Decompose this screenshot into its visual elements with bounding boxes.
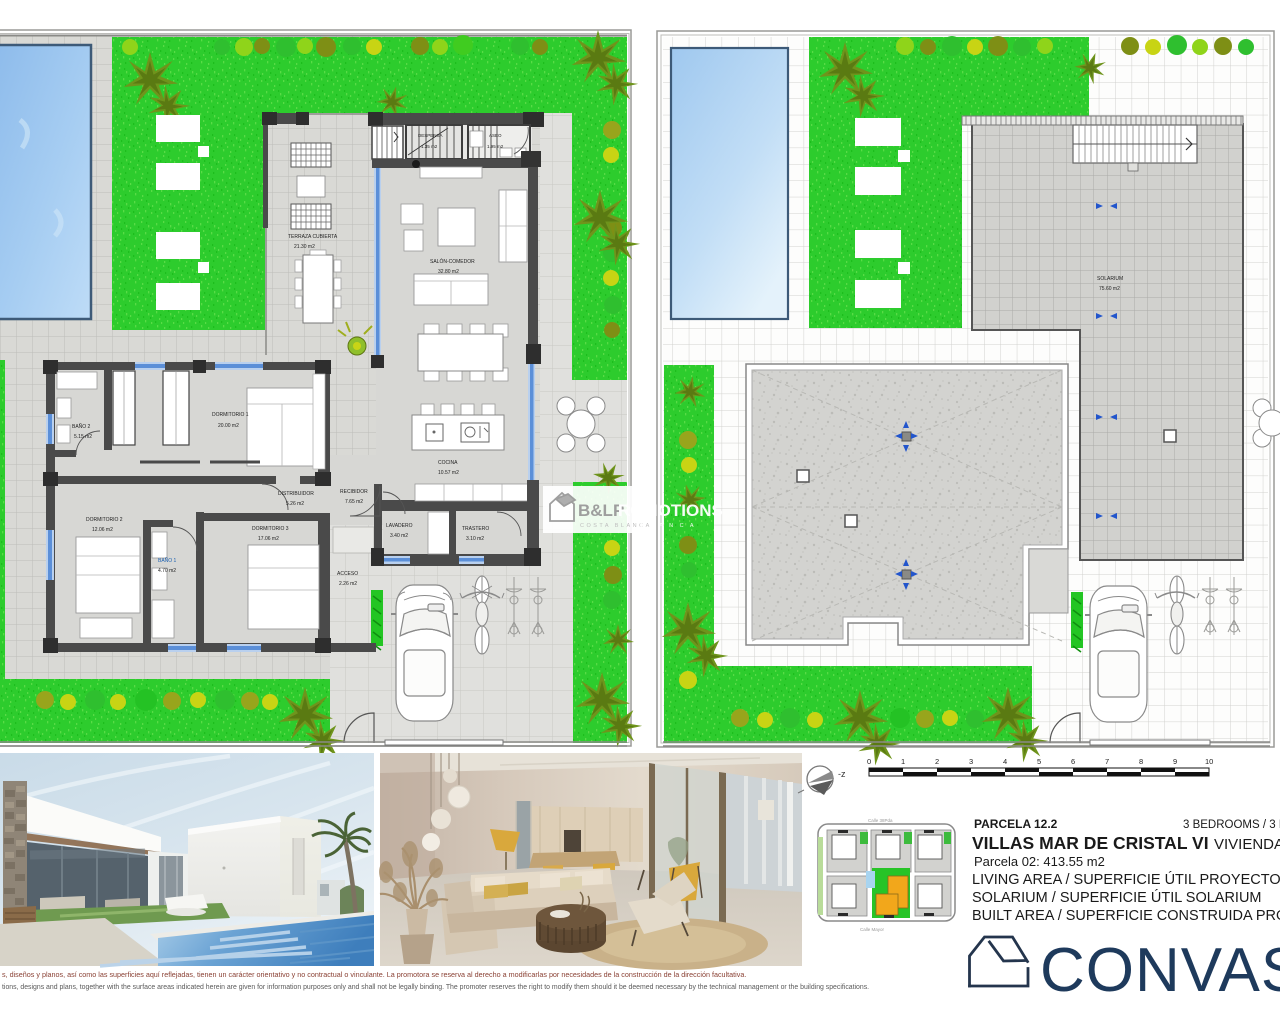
svg-text:75.60 m2: 75.60 m2 bbox=[1099, 286, 1120, 292]
svg-text:5.15 m2: 5.15 m2 bbox=[74, 434, 92, 440]
svg-text:BUILT AREA / SUPERFICIE CONSTR: BUILT AREA / SUPERFICIE CONSTRUIDA PROYE… bbox=[972, 908, 1280, 924]
svg-text:0: 0 bbox=[867, 757, 871, 766]
svg-text:4.70 m2: 4.70 m2 bbox=[158, 568, 176, 574]
svg-text:1: 1 bbox=[901, 757, 905, 766]
svg-text:6: 6 bbox=[1071, 757, 1075, 766]
svg-text:-z: -z bbox=[838, 769, 846, 779]
svg-text:tions, designs and plans, toge: tions, designs and plans, together with … bbox=[2, 984, 869, 991]
svg-text:VIVIENDA 02: VIVIENDA 02 bbox=[1214, 836, 1280, 853]
svg-text:TRASTERO: TRASTERO bbox=[462, 526, 489, 532]
svg-text:2: 2 bbox=[935, 757, 939, 766]
svg-text:3 BEDROOMS / 3 DORMITORIOS: 3 BEDROOMS / 3 DORMITORIOS bbox=[1183, 819, 1280, 831]
svg-text:8: 8 bbox=[1139, 757, 1143, 766]
svg-text:2.26 m2: 2.26 m2 bbox=[339, 581, 357, 587]
svg-text:BAÑO 1: BAÑO 1 bbox=[158, 557, 177, 564]
svg-text:CONVAS: CONVAS bbox=[1040, 936, 1280, 1005]
svg-text:DESPENSA: DESPENSA bbox=[418, 133, 443, 138]
svg-text:TERRAZA CUBIERTA: TERRAZA CUBIERTA bbox=[288, 234, 338, 240]
svg-text:LIVING AREA / SUPERFICIE ÚTIL: LIVING AREA / SUPERFICIE ÚTIL PROYECTO bbox=[972, 871, 1280, 888]
svg-text:9: 9 bbox=[1173, 757, 1177, 766]
svg-text:Calle Mayor: Calle Mayor bbox=[860, 927, 885, 932]
svg-text:12.06 m2: 12.06 m2 bbox=[92, 527, 113, 533]
svg-text:5.26 m2: 5.26 m2 bbox=[286, 501, 304, 507]
svg-text:21.30 m2: 21.30 m2 bbox=[294, 244, 315, 250]
svg-text:s, diseños y planos, así como: s, diseños y planos, así como las superf… bbox=[2, 970, 746, 979]
svg-text:7.65 m2: 7.65 m2 bbox=[345, 499, 363, 505]
svg-text:ROMOTIONS: ROMOTIONS bbox=[618, 501, 723, 520]
svg-text:SOLARIUM / SUPERFICIE ÚTIL SOL: SOLARIUM / SUPERFICIE ÚTIL SOLARIUM bbox=[972, 889, 1262, 906]
svg-text:DORMITORIO 2: DORMITORIO 2 bbox=[86, 517, 123, 523]
svg-text:5: 5 bbox=[1037, 757, 1041, 766]
svg-text:10: 10 bbox=[1205, 757, 1213, 766]
svg-text:10.57 m2: 10.57 m2 bbox=[438, 470, 459, 476]
svg-text:1.35 m2: 1.35 m2 bbox=[421, 144, 438, 149]
svg-text:1.95 m2: 1.95 m2 bbox=[487, 144, 504, 149]
svg-text:SOLARIUM: SOLARIUM bbox=[1097, 276, 1123, 282]
svg-text:ASEO: ASEO bbox=[489, 133, 502, 138]
svg-text:DORMITORIO 1: DORMITORIO 1 bbox=[212, 412, 249, 418]
svg-text:7: 7 bbox=[1105, 757, 1109, 766]
svg-text:PARCELA 12.2: PARCELA 12.2 bbox=[974, 817, 1058, 831]
svg-text:VILLAS MAR DE CRISTAL VI: VILLAS MAR DE CRISTAL VI bbox=[972, 833, 1209, 853]
svg-text:Parcela 02: 413.55 m2: Parcela 02: 413.55 m2 bbox=[974, 854, 1105, 869]
svg-text:3: 3 bbox=[969, 757, 973, 766]
svg-text:20.00 m2: 20.00 m2 bbox=[218, 423, 239, 429]
svg-text:LAVADERO: LAVADERO bbox=[386, 523, 413, 529]
svg-text:3.40 m2: 3.40 m2 bbox=[390, 533, 408, 539]
svg-text:ACCESO: ACCESO bbox=[337, 571, 358, 577]
svg-text:DORMITORIO 3: DORMITORIO 3 bbox=[252, 526, 289, 532]
svg-text:BAÑO 2: BAÑO 2 bbox=[72, 423, 91, 430]
svg-text:B L A N C A: B L A N C A bbox=[640, 523, 696, 529]
svg-text:SALÓN-COMEDOR: SALÓN-COMEDOR bbox=[430, 258, 475, 265]
svg-text:COCINA: COCINA bbox=[438, 460, 458, 466]
svg-text:Calle 38Pda: Calle 38Pda bbox=[868, 818, 893, 823]
svg-text:3.10 m2: 3.10 m2 bbox=[466, 536, 484, 542]
svg-text:17.06 m2: 17.06 m2 bbox=[258, 536, 279, 542]
svg-text:RECIBIDOR: RECIBIDOR bbox=[340, 489, 368, 495]
svg-text:4: 4 bbox=[1003, 757, 1007, 766]
svg-text:DISTRIBUIDOR: DISTRIBUIDOR bbox=[278, 491, 314, 497]
